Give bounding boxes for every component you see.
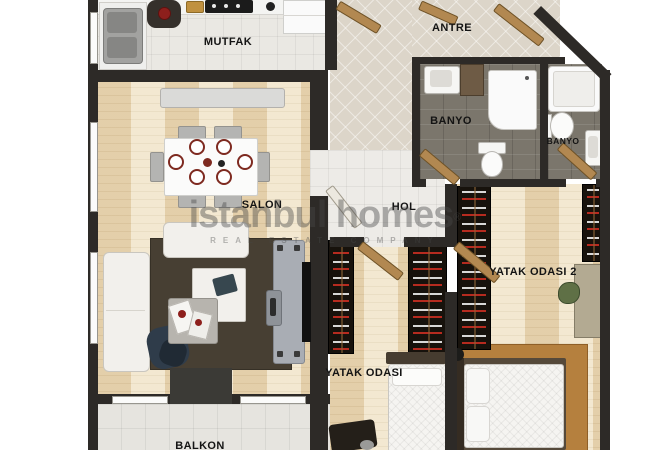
wall-balcony-right — [310, 394, 328, 450]
magazine-spot — [178, 310, 186, 318]
wall-bath-bottom — [412, 179, 426, 187]
bathroom-sink-basin — [430, 70, 452, 87]
console-screw — [277, 245, 283, 251]
wall-living-right-upper — [310, 70, 328, 150]
room-label-hall: HOL — [392, 201, 416, 213]
plant-icon — [558, 282, 580, 304]
console-screw — [294, 351, 300, 357]
room-label-entry: ANTRE — [432, 22, 472, 34]
stove-burner — [212, 4, 216, 8]
wall-kitchen-right — [325, 0, 337, 70]
room-label-bathroom-second: BANYO — [547, 136, 580, 146]
magazine-spot — [195, 319, 202, 326]
kitchen-sink-basin-top — [107, 12, 137, 33]
plate-icon — [189, 169, 205, 185]
console-screw — [277, 351, 283, 357]
dining-chair — [178, 194, 206, 208]
stove-burner — [236, 4, 240, 8]
wardrobe — [408, 240, 447, 354]
wall-bath-bottom — [460, 179, 566, 187]
window — [90, 252, 98, 344]
counter-jars — [186, 1, 204, 13]
tv-icon — [302, 262, 311, 342]
table-decor — [218, 160, 225, 167]
dining-chair — [150, 152, 164, 182]
room-label-living: SALON — [242, 199, 283, 211]
window — [112, 396, 168, 404]
bathroom2-sink-basin — [588, 136, 598, 158]
plate-icon — [168, 154, 184, 170]
dining-chair — [256, 152, 270, 182]
double-bed-pillow — [466, 368, 490, 404]
room-label-bathroom-main: BANYO — [430, 115, 472, 127]
wall-bath-divider — [540, 64, 548, 179]
wall-bedroom-divider-lower — [445, 292, 457, 450]
plate-icon — [216, 139, 232, 155]
sofa — [103, 252, 150, 372]
wall-right-outer — [600, 70, 610, 450]
wall-bath-top — [412, 57, 565, 64]
room-label-bedroom-2: YATAK ODASI 2 — [489, 266, 577, 278]
shower-drain — [525, 76, 529, 80]
wall-bath-left — [412, 57, 420, 187]
bathtub-inner — [553, 71, 595, 107]
wall-left-outer — [88, 0, 98, 450]
desk-item — [360, 440, 374, 450]
console-screw — [294, 245, 300, 251]
dining-chair — [214, 194, 242, 208]
single-bed-headboard — [386, 352, 446, 364]
room-label-balcony: BALKON — [175, 440, 224, 450]
room-label-bedroom-1: YATAK ODASI — [325, 367, 403, 379]
room-label-kitchen: MUTFAK — [204, 36, 252, 48]
shower-icon — [488, 70, 537, 130]
plate-icon — [216, 169, 232, 185]
window — [240, 396, 306, 404]
double-bed-pillow — [466, 406, 490, 442]
plate-icon — [189, 139, 205, 155]
stove-burner — [224, 4, 228, 8]
loveseat — [163, 222, 249, 258]
sideboard — [160, 88, 285, 108]
balcony-sliding-door — [170, 368, 232, 404]
serving-bowl — [203, 158, 212, 167]
window — [90, 12, 98, 64]
window — [90, 122, 98, 212]
wall-kitchen-living — [97, 70, 310, 82]
toilet-bowl — [481, 151, 503, 177]
fridge-icon — [283, 0, 327, 34]
wall-living-right-lower — [310, 196, 328, 394]
bathroom-cabinet — [460, 64, 484, 96]
wardrobe — [328, 240, 354, 354]
dresser — [574, 264, 602, 338]
plate-icon — [237, 154, 253, 170]
kitchen-table-dish — [158, 7, 171, 20]
kitchen-sink-basin-bottom — [107, 37, 137, 58]
tv-console-knob — [270, 298, 276, 316]
fridge-seam — [283, 15, 325, 16]
floor-plan: MUTFAK ANTRE BANYO BANYO SALON HOL YATAK… — [0, 0, 650, 450]
wall-bedroom-divider-upper — [445, 184, 457, 243]
counter-pot — [266, 2, 275, 11]
sofa-seam — [106, 310, 145, 311]
